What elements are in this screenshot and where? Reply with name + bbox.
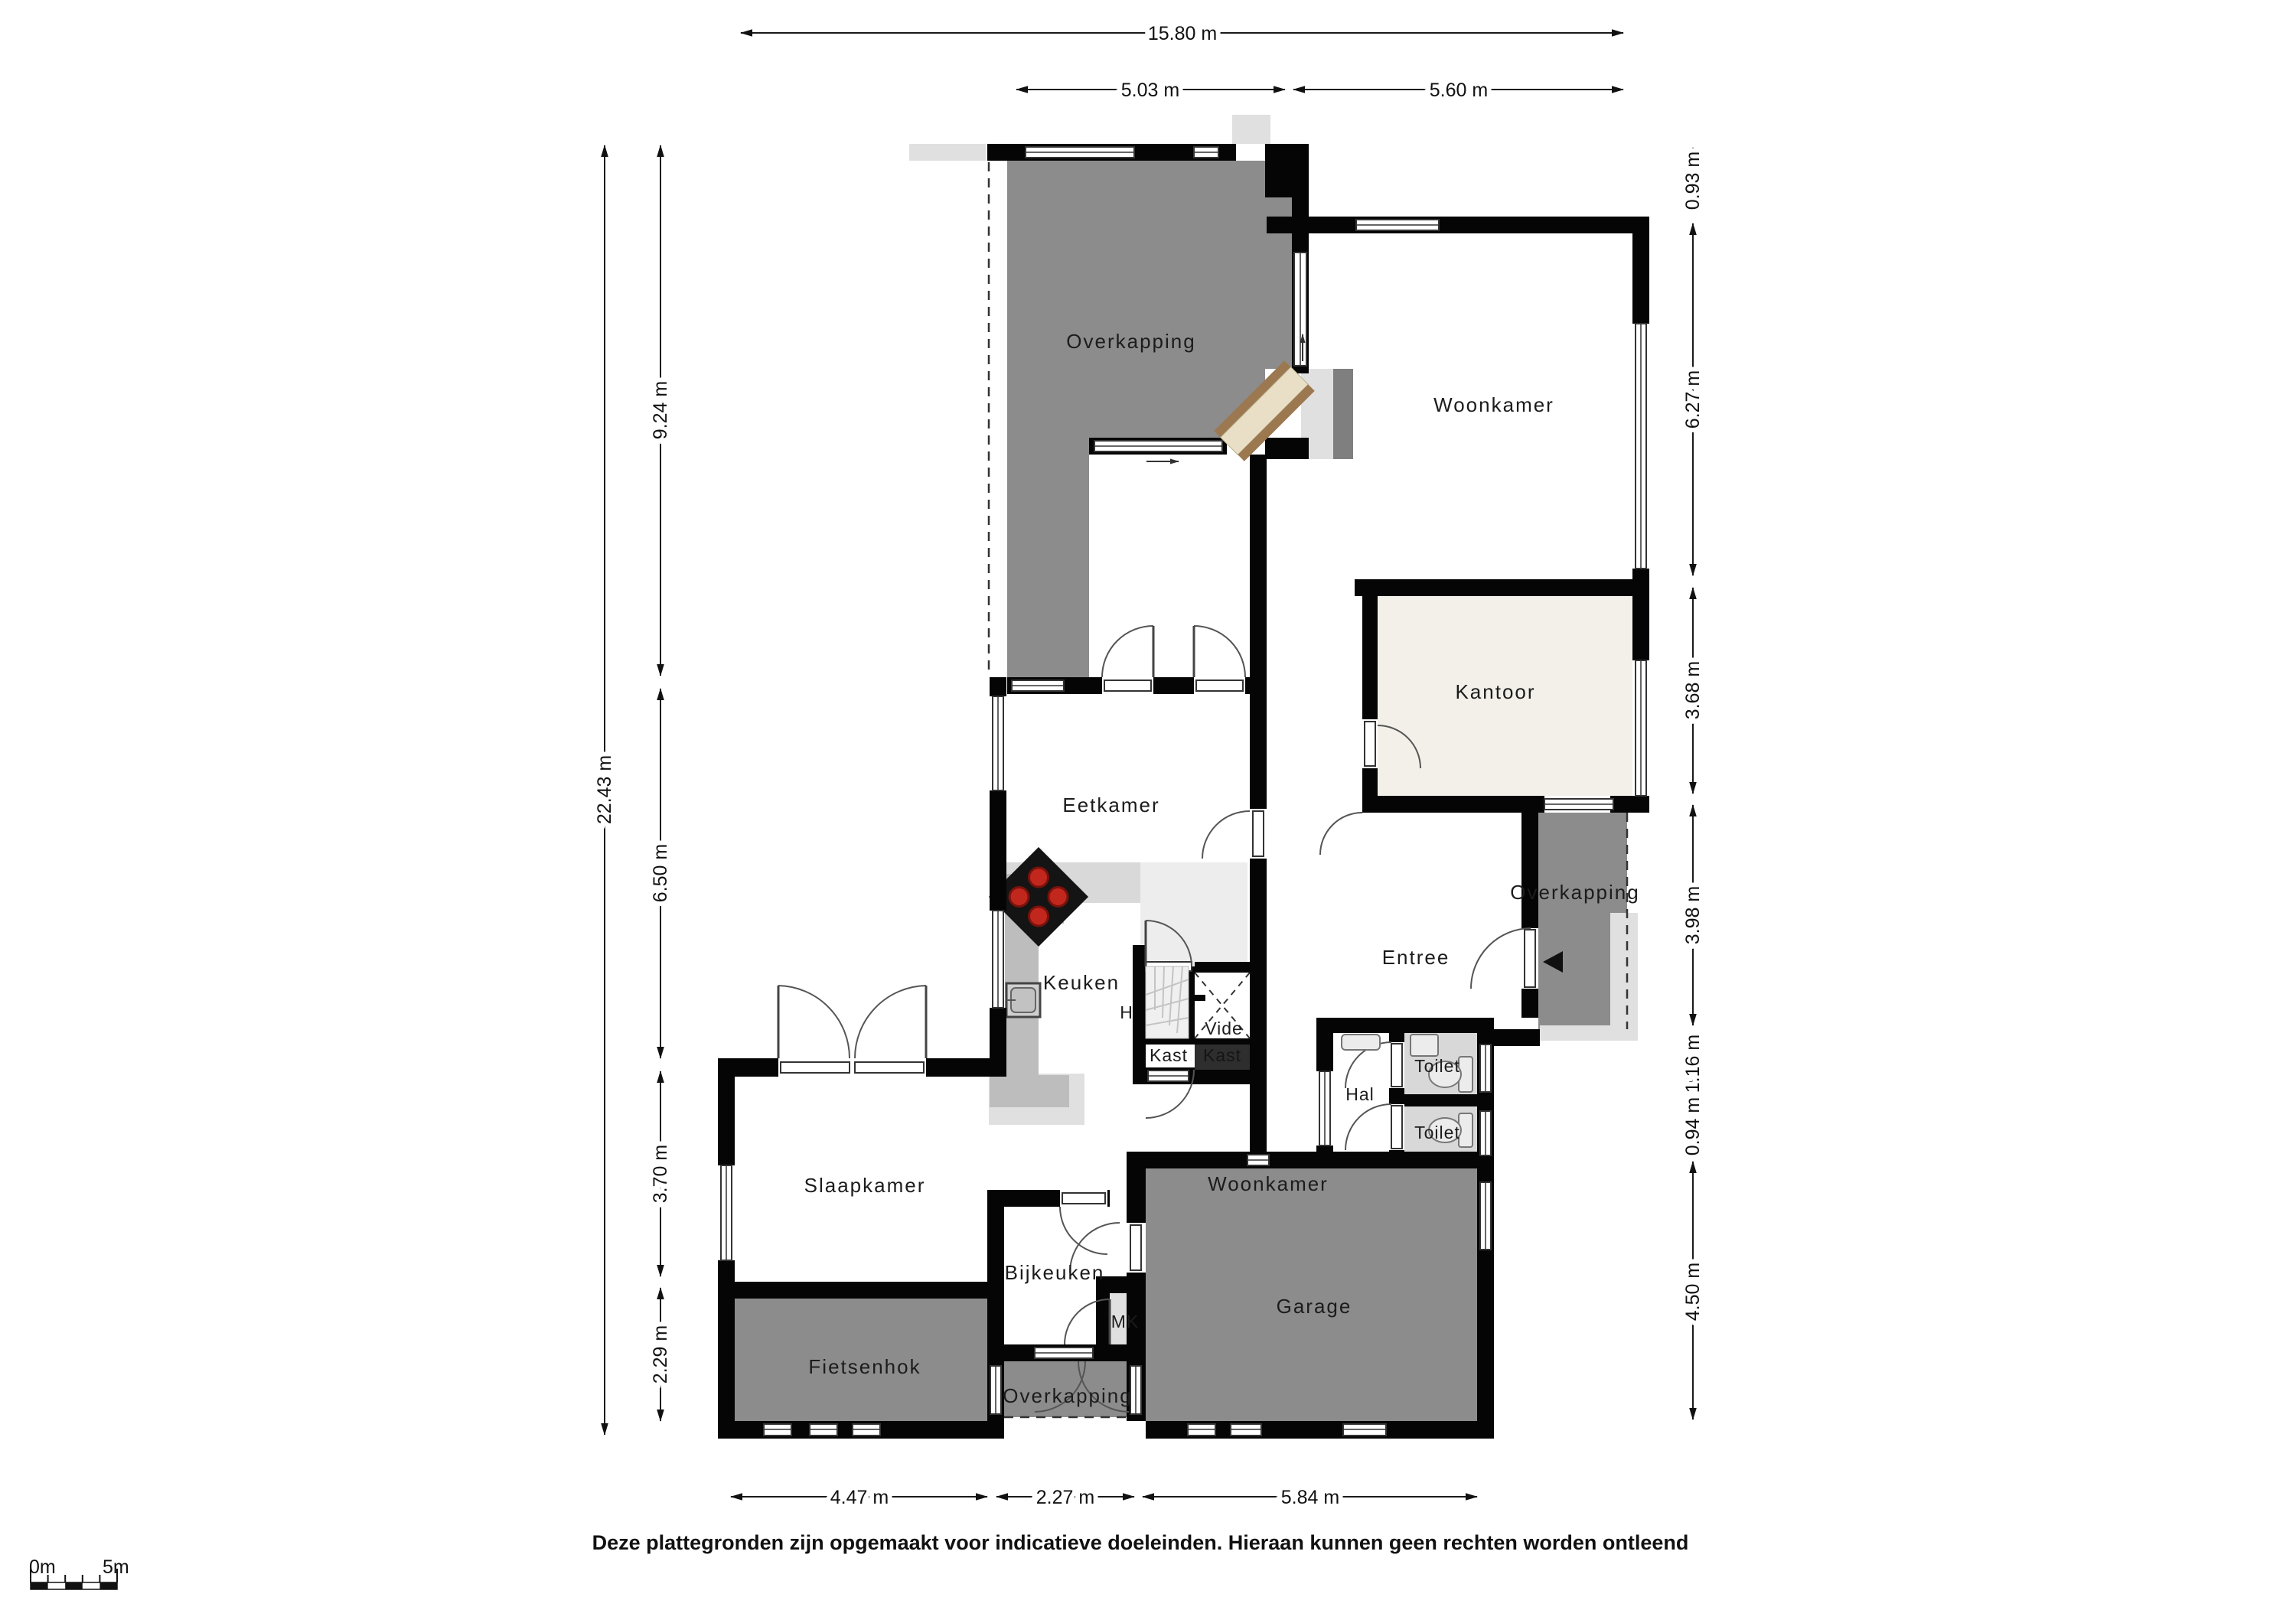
dim-left-2-29: 2.29 m (650, 1325, 671, 1383)
dim-right-6-27: 6.27 m (1682, 370, 1704, 429)
scale-bar: 0m 5m (29, 1556, 129, 1589)
dim-right-3-98: 3.98 m (1682, 886, 1704, 944)
kitchen-sink-icon (1006, 983, 1040, 1017)
dim-left-total: 22.43 m (594, 755, 615, 824)
dim-bottom-2-27: 2.27 m (1036, 1487, 1094, 1508)
room-label-kantoor: Kantoor (1455, 680, 1535, 703)
dim-left-9-24: 9.24 m (650, 381, 671, 439)
dim-top-right-segment: 5.60 m (1430, 80, 1488, 101)
dim-top-total: 15.80 m (1148, 23, 1217, 44)
room-label-garage: Garage (1277, 1295, 1352, 1318)
hand-basin-icon (1411, 1035, 1438, 1056)
dim-right-3-68: 3.68 m (1682, 661, 1704, 719)
room-label-woonkamer-top: Woonkamer (1433, 393, 1554, 416)
room-label-kast: Kast (1150, 1045, 1188, 1065)
room-label-h: H (1120, 1002, 1133, 1022)
room-label-fietsenhok: Fietsenhok (808, 1355, 921, 1378)
scale-bar-start-label: 0m (29, 1556, 56, 1578)
room-label-overkapping-right: Overkapping (1510, 881, 1639, 904)
room-label-kast-dark: Kast (1203, 1045, 1241, 1065)
room-label-woonkamer-bottom: Woonkamer (1208, 1172, 1329, 1195)
room-label-mk: MK (1111, 1312, 1140, 1331)
room-label-slaapkamer: Slaapkamer (804, 1174, 926, 1197)
room-label-overkapping-top: Overkapping (1066, 330, 1195, 353)
room-label-vide: Vide (1205, 1018, 1243, 1038)
disclaimer-text: Deze plattegronden zijn opgemaakt voor i… (592, 1531, 1689, 1554)
dim-right-4-50: 4.50 m (1682, 1263, 1704, 1321)
winder-stairs-icon (1146, 966, 1189, 1038)
room-label-bijkeuken: Bijkeuken (1005, 1261, 1105, 1284)
room-label-keuken: Keuken (1043, 971, 1120, 994)
floorplan-canvas: Overkapping Woonkamer Kantoor Eetkamer K… (0, 0, 2296, 1623)
dim-bottom-4-47: 4.47 m (830, 1487, 889, 1508)
dim-right-0-93: 0.93 m (1682, 152, 1704, 210)
scale-bar-end-label: 5m (103, 1556, 129, 1578)
dim-right-0-94: 0.94 m (1682, 1097, 1704, 1155)
room-label-entree: Entree (1382, 946, 1450, 969)
dim-left-6-50: 6.50 m (650, 844, 671, 902)
radiator-icon (1342, 1035, 1380, 1050)
room-label-eetkamer: Eetkamer (1062, 794, 1159, 816)
dim-left-3-70: 3.70 m (650, 1145, 671, 1203)
room-label-toilet-top: Toilet (1414, 1056, 1460, 1076)
room-label-overkapping-bottom: Overkapping (1003, 1384, 1132, 1407)
dim-bottom-5-84: 5.84 m (1281, 1487, 1339, 1508)
dim-right-1-16: 1.16 m (1682, 1035, 1704, 1093)
dim-top-left-segment: 5.03 m (1121, 80, 1179, 101)
room-label-toilet-bottom: Toilet (1414, 1123, 1460, 1142)
area-fills (735, 115, 1638, 1421)
room-label-hal: Hal (1345, 1084, 1375, 1104)
